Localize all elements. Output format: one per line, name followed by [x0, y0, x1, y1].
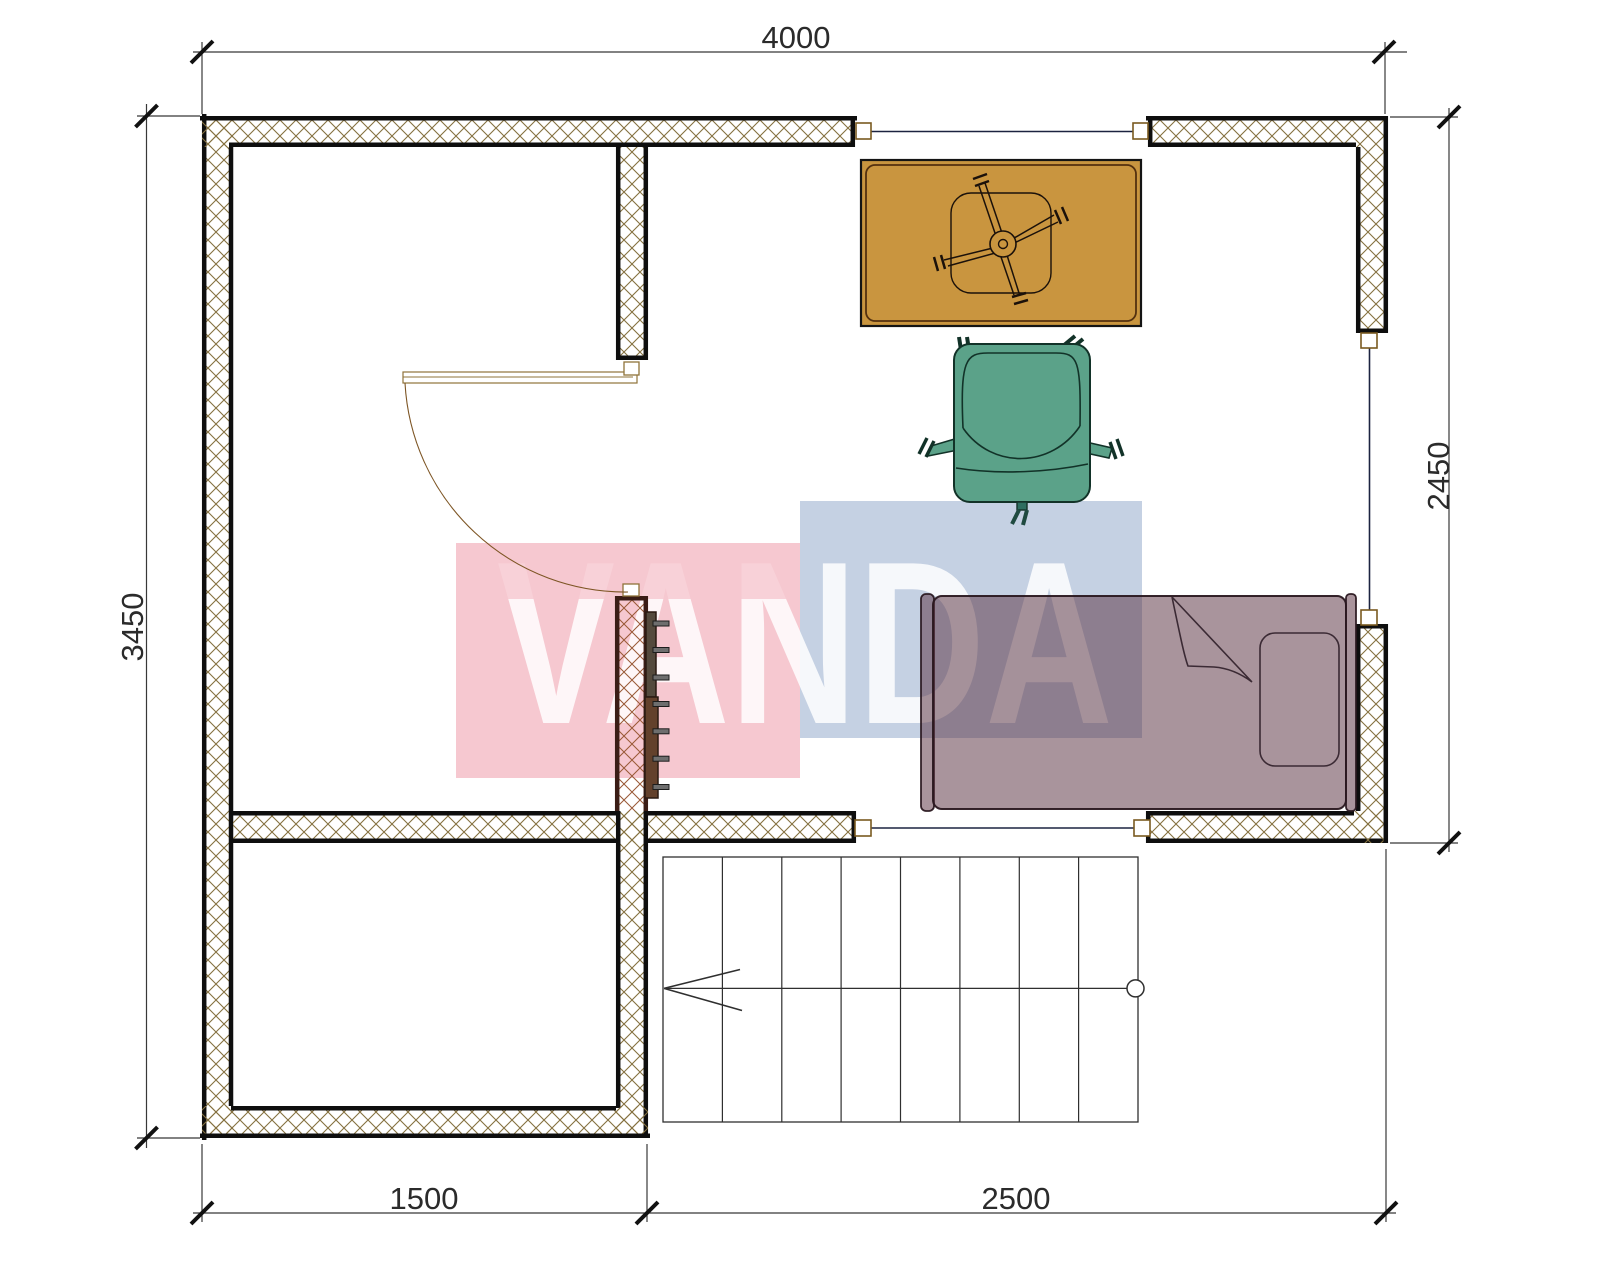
svg-text:4000: 4000: [762, 20, 831, 55]
svg-text:1500: 1500: [390, 1181, 459, 1216]
svg-text:2500: 2500: [982, 1181, 1051, 1216]
svg-text:3450: 3450: [115, 593, 150, 662]
svg-text:2450: 2450: [1421, 442, 1456, 511]
